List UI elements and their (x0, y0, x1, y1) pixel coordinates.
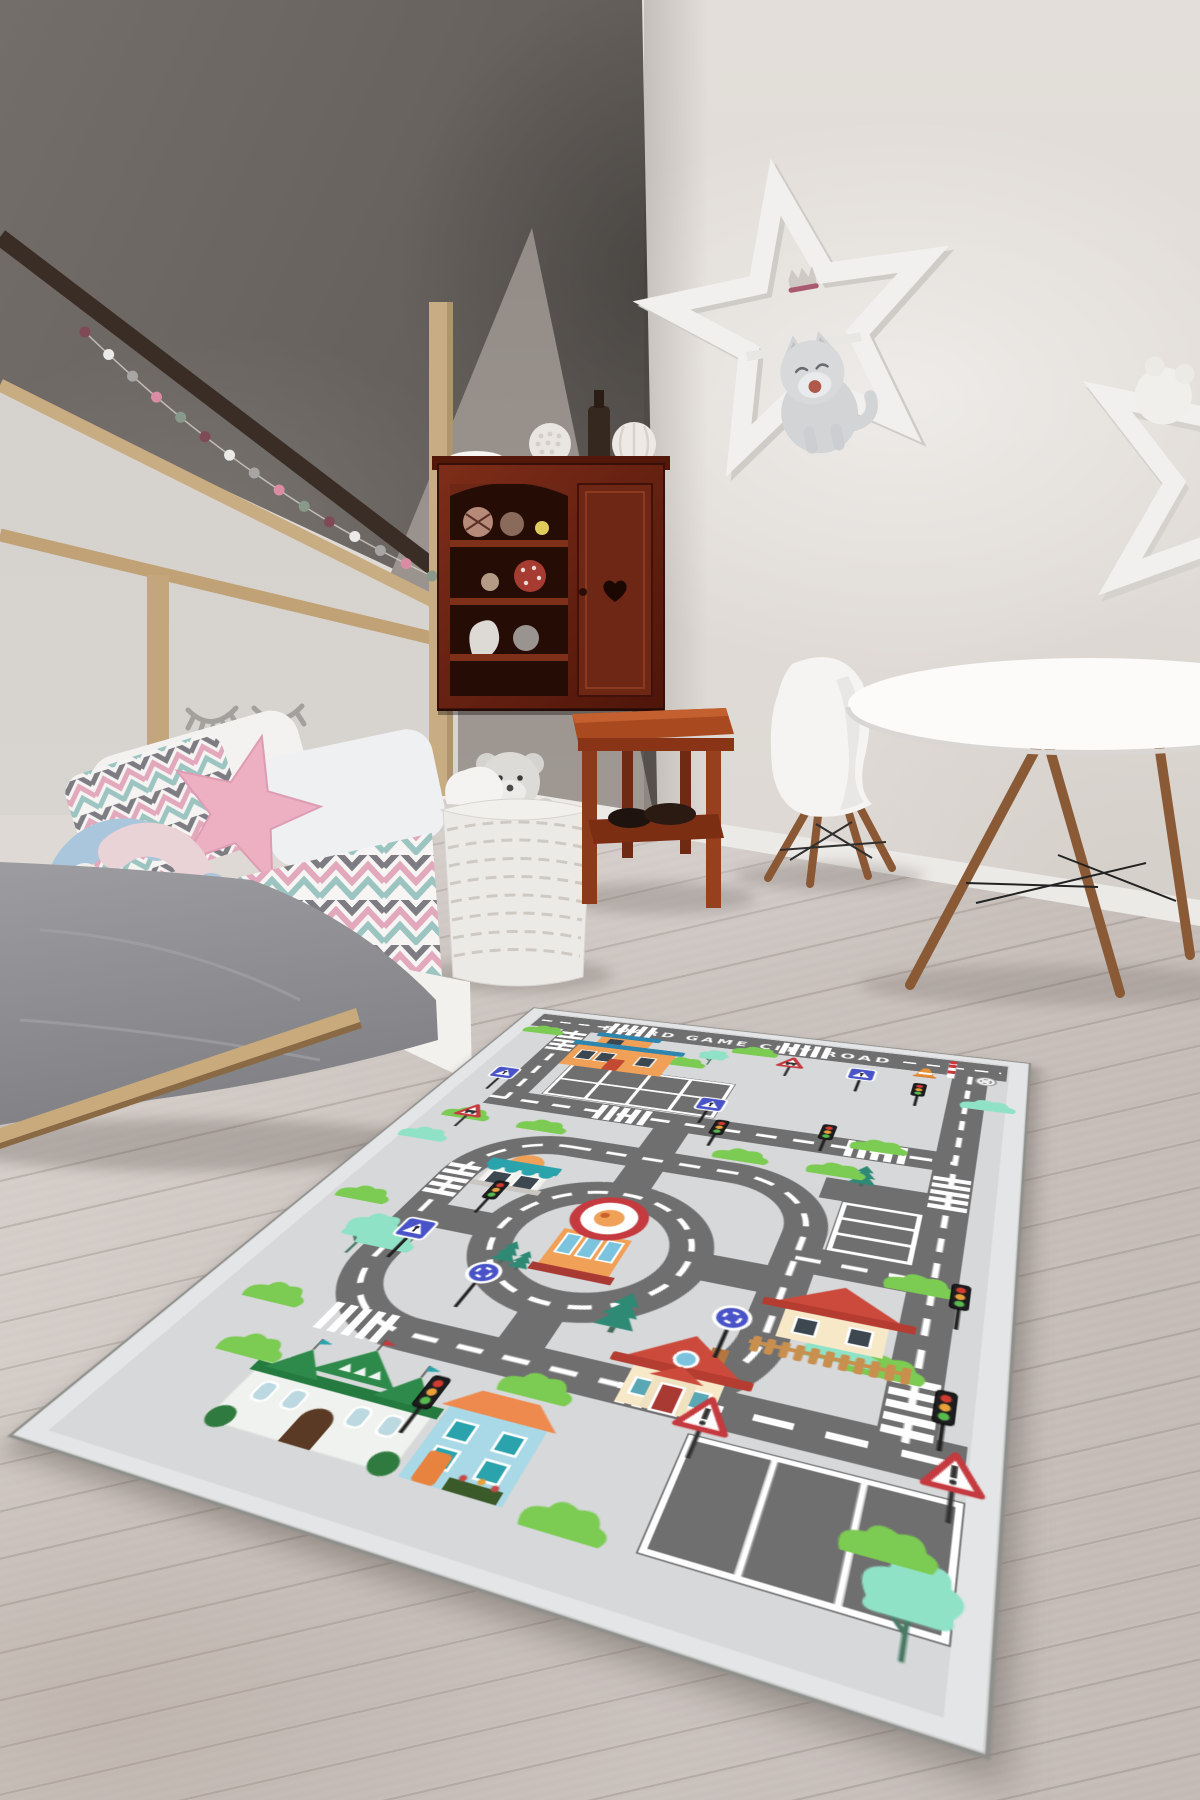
wall-cabinet (432, 390, 670, 715)
star-shelf (645, 163, 958, 476)
bed (0, 704, 472, 1149)
kids-room-photo: BOARD GAME CITY ROAD (0, 0, 1200, 1800)
round-table (848, 658, 1200, 993)
laundry-basket (441, 752, 593, 986)
star-shelf-2 (1064, 293, 1200, 641)
wood-stool (572, 708, 734, 908)
